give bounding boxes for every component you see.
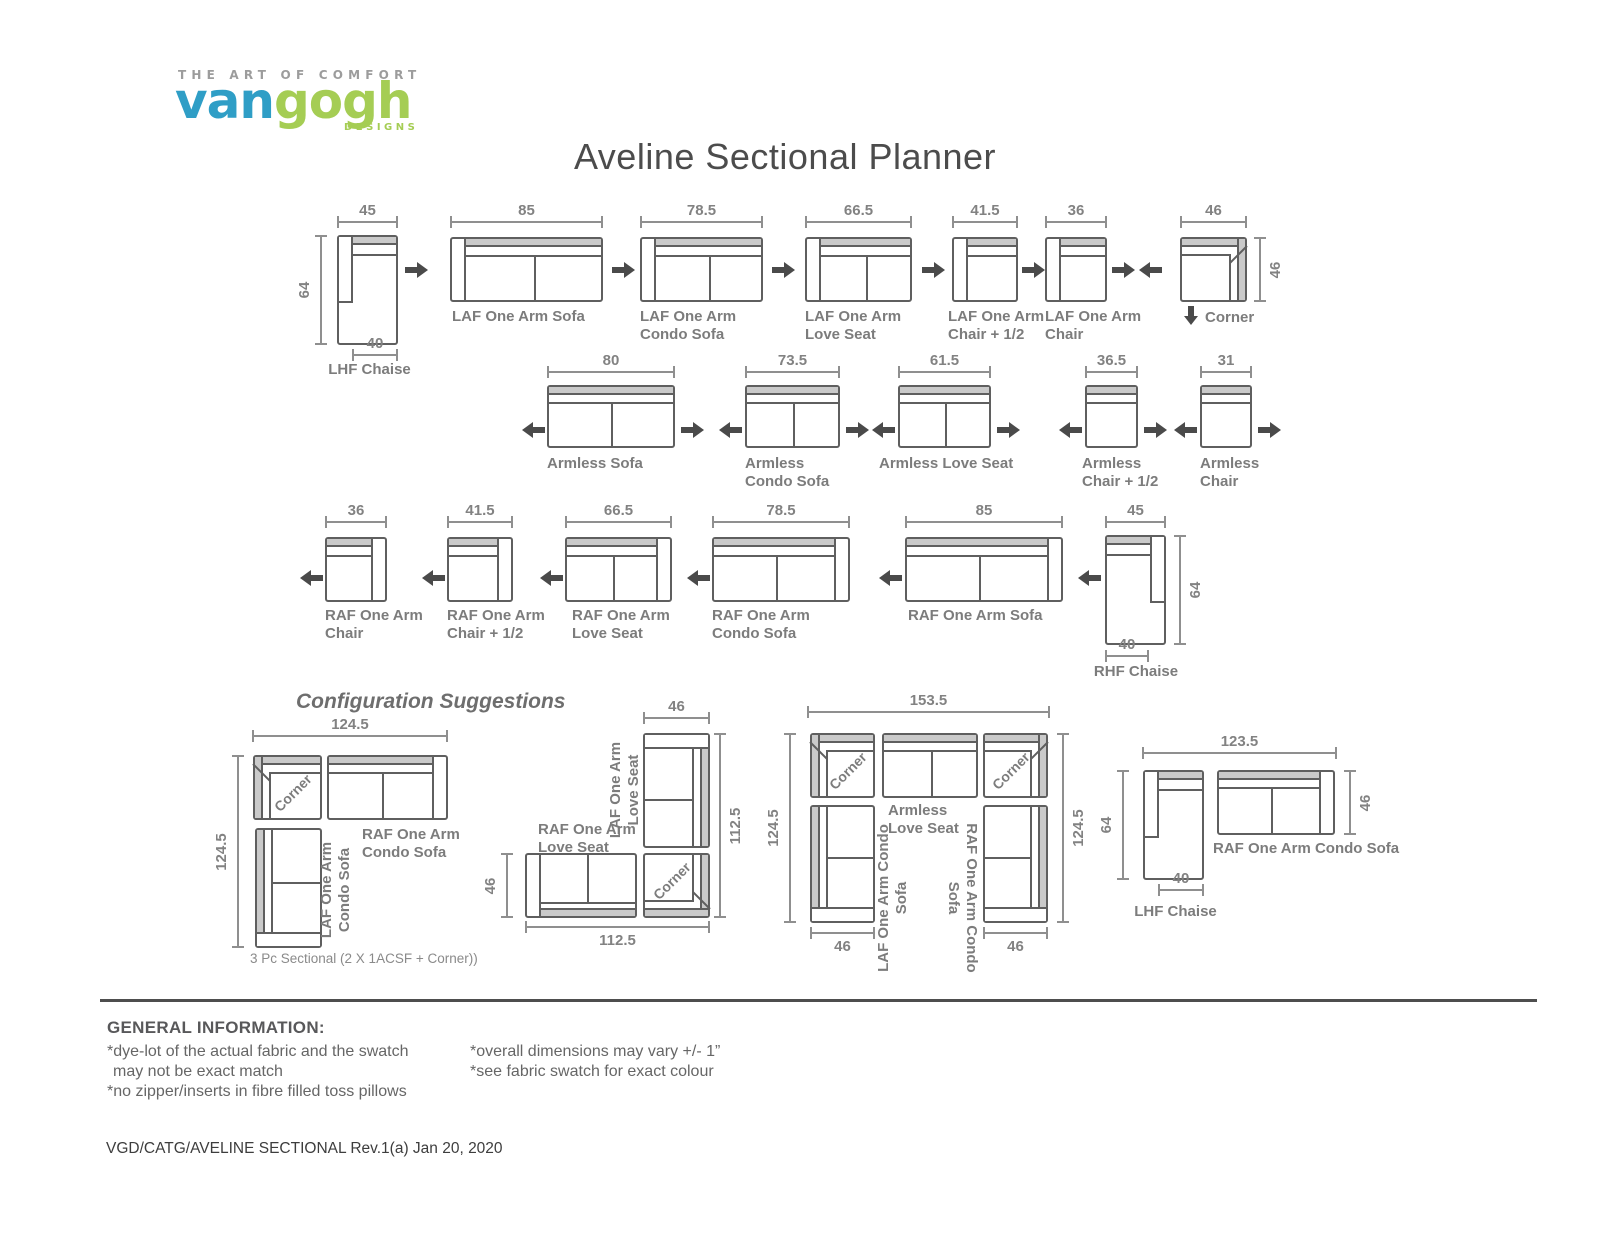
arm	[985, 907, 1046, 921]
config3-base-right-dim: 46	[983, 927, 1048, 939]
dim-value: 61.5	[880, 352, 1009, 369]
cushion-divider	[931, 750, 933, 796]
seat-line	[1182, 254, 1231, 256]
seat-line	[1159, 789, 1202, 791]
config3-corner-right-diagram: Corner	[983, 733, 1048, 798]
dim-value: 64	[1099, 802, 1115, 848]
armless-chairhalf-diagram	[1085, 385, 1138, 448]
backrest	[327, 539, 373, 547]
arrow-right-icon	[1258, 422, 1281, 438]
seat-line	[329, 772, 432, 774]
config2-laf-loveseat-diagram	[643, 733, 710, 848]
dim-line	[1087, 371, 1136, 373]
seat-line	[1030, 807, 1032, 909]
config1-width-dim: 124.5	[252, 730, 448, 742]
dim-line	[985, 932, 1046, 934]
armless-sofa-diagram	[547, 385, 675, 448]
arrow-shaft	[1150, 267, 1162, 273]
arrow-left-icon	[422, 570, 445, 586]
dim-line	[339, 221, 396, 223]
corner-label: Corner	[255, 755, 330, 830]
raf-chair-diagram	[325, 537, 387, 602]
corner-width-dim: 46	[1180, 216, 1247, 228]
arrow-head	[719, 422, 730, 438]
dim-line	[527, 926, 708, 928]
config4-sofa-depth-dim: 46	[1344, 770, 1356, 835]
dim-value: 46	[965, 938, 1066, 955]
arrow-shaft	[1188, 306, 1194, 316]
arrow-right-icon	[1144, 422, 1167, 438]
dim-value: 40	[334, 335, 416, 352]
seat-line	[1087, 402, 1136, 404]
dim-value: 36	[1027, 202, 1125, 219]
arrow-head	[858, 422, 869, 438]
arm	[339, 237, 353, 303]
cushion-divider	[945, 402, 947, 446]
arrow-shaft	[997, 427, 1009, 433]
config3-raf-condo-diagram	[983, 805, 1048, 923]
arrow-right-icon	[1022, 262, 1045, 278]
dim-line	[320, 237, 322, 343]
corner-label: Corner	[1184, 306, 1254, 327]
config1-raf-condo-diagram	[327, 755, 448, 820]
seat-line	[1061, 255, 1105, 257]
cushion-divider	[613, 555, 615, 600]
arrow-right-icon	[1112, 262, 1135, 278]
arrow-left-icon	[687, 570, 710, 586]
cushion-divider	[587, 855, 589, 902]
config4-width-dim: 123.5	[1142, 747, 1337, 759]
arrow-shaft	[846, 427, 858, 433]
dim-line	[1062, 735, 1064, 921]
backrest	[567, 539, 658, 547]
arrow-head	[1156, 422, 1167, 438]
dim-line	[747, 371, 838, 373]
cushion-divider	[709, 255, 711, 300]
dim-line	[645, 717, 708, 719]
armless-condo-diagram	[745, 385, 840, 448]
rhf-chaise-width-dim: 45	[1105, 516, 1166, 528]
config2-right-dim: 112.5	[714, 733, 726, 918]
arm	[1150, 537, 1164, 603]
arrow-shaft	[1144, 427, 1156, 433]
laf-chairhalf-label: LAF One Arm Chair + 1/2	[948, 308, 1052, 344]
arrow-shaft	[1112, 267, 1124, 273]
rhf-chaise-label: RHF Chaise	[1086, 663, 1186, 681]
rhf-chaise-depth-dim: 64	[1174, 535, 1186, 645]
corner-depth-dim: 46	[1254, 237, 1266, 302]
dim-value: 46	[1162, 202, 1265, 219]
backrest	[464, 239, 601, 247]
backrest	[257, 830, 265, 946]
config2-top-dim: 46	[643, 712, 710, 724]
dim-value: 153.5	[789, 692, 1068, 709]
laf-loveseat-label: LAF One Arm Love Seat	[805, 308, 915, 344]
backrest	[1157, 772, 1202, 780]
arrow-right-icon	[772, 262, 795, 278]
arrow-head	[1009, 422, 1020, 438]
backrest	[884, 735, 976, 743]
arrow-shaft	[890, 575, 902, 581]
arrow-shaft	[730, 427, 742, 433]
dim-line	[1179, 537, 1181, 643]
arrow-shaft	[698, 575, 710, 581]
seat-line	[1107, 554, 1150, 556]
info-line-match: may not be exact match	[113, 1062, 283, 1082]
laf-chair-width-dim: 36	[1045, 216, 1107, 228]
laf-sofa-diagram	[450, 237, 603, 302]
backrest	[449, 539, 499, 547]
dim-value: 64	[297, 267, 313, 313]
dim-value: 80	[529, 352, 693, 369]
arrow-right-icon	[681, 422, 704, 438]
arrow-left-icon	[1059, 422, 1082, 438]
armless-chairhalf-width-dim: 36.5	[1085, 366, 1138, 378]
lhf-chaise-width-dim: 45	[337, 216, 398, 228]
seat-line	[327, 555, 371, 557]
corner-diagram	[1180, 237, 1247, 302]
dim-value: 112.5	[728, 803, 744, 849]
seat-line	[968, 255, 1016, 257]
dim-value: 112.5	[507, 932, 728, 949]
dim-line	[452, 221, 601, 223]
armless-sofa-label: Armless Sofa	[547, 455, 643, 473]
lhf-chaise-diagram	[337, 235, 398, 345]
laf-chairhalf-diagram	[952, 237, 1018, 302]
dim-value: 85	[887, 502, 1081, 519]
config4-lhf-chaise-diagram	[1143, 770, 1204, 880]
dim-line	[1144, 752, 1335, 754]
arrow-right-icon	[922, 262, 945, 278]
config3-base-left-dim: 46	[810, 927, 875, 939]
arrow-shaft	[1070, 427, 1082, 433]
dim-line	[506, 855, 508, 916]
dim-value: 124.5	[1071, 805, 1087, 851]
dim-line	[254, 735, 446, 737]
document-footer: VGD/CATG/AVELINE SECTIONAL Rev.1(a) Jan …	[106, 1140, 503, 1158]
config4-raf-condo-diagram	[1217, 770, 1335, 835]
backrest	[1059, 239, 1105, 247]
armless-chair-diagram	[1200, 385, 1252, 448]
arrow-shaft	[1185, 427, 1197, 433]
arm	[1047, 239, 1061, 300]
config3-laf-condo-diagram	[810, 805, 875, 923]
dim-line	[1122, 772, 1124, 878]
backrest	[1202, 387, 1250, 395]
seat-line	[567, 555, 656, 557]
dim-line	[1182, 221, 1245, 223]
cushion-divider	[645, 799, 694, 801]
arrow-head	[300, 570, 311, 586]
arrow-shaft	[681, 427, 693, 433]
dim-value: 124.5	[234, 716, 466, 733]
dim-value: 46	[483, 863, 499, 909]
raf-loveseat-width-dim: 66.5	[565, 516, 672, 528]
backrest	[1107, 537, 1152, 545]
dim-value: 31	[1182, 352, 1270, 369]
arm	[812, 907, 873, 921]
raf-chairhalf-width-dim: 41.5	[447, 516, 513, 528]
dim-value: 46	[1358, 780, 1374, 826]
config3-width-dim: 153.5	[807, 706, 1050, 718]
backrest	[1087, 387, 1136, 395]
raf-condo-label: RAF One Arm Condo Sofa	[712, 607, 822, 643]
raf-loveseat-diagram	[565, 537, 672, 602]
backrest	[1182, 239, 1245, 247]
logo-van: van	[175, 72, 274, 130]
logo: vangogh	[175, 76, 411, 126]
rhf-chaise-seat-dim: 40	[1105, 650, 1149, 662]
dim-value: 66.5	[787, 202, 930, 219]
arrow-head	[1139, 262, 1150, 278]
arrow-left-icon	[719, 422, 742, 438]
backrest	[329, 757, 434, 765]
raf-chair-width-dim: 36	[325, 516, 387, 528]
arrow-shaft	[772, 267, 784, 273]
raf-loveseat-label: RAF One Arm Love Seat	[572, 607, 682, 643]
corner-label-text: Corner	[1205, 309, 1254, 326]
dim-line	[1160, 889, 1202, 891]
dim-value: 41.5	[934, 202, 1036, 219]
arrow-right-icon	[846, 422, 869, 438]
arm	[834, 539, 848, 600]
dim-line	[789, 735, 791, 921]
seat-line	[692, 749, 694, 846]
page-title: Aveline Sectional Planner	[500, 136, 1070, 178]
arrow-shaft	[405, 267, 417, 273]
laf-chair-label: LAF One Arm Chair	[1045, 308, 1149, 344]
cushion-divider	[793, 402, 795, 446]
cushion-divider	[979, 555, 981, 600]
backrest	[700, 747, 708, 846]
config2-bottom-dim: 112.5	[525, 921, 710, 933]
arm	[257, 932, 320, 946]
lhf-chaise-seat-dim: 40	[352, 349, 398, 361]
laf-condo-width-dim: 78.5	[640, 216, 763, 228]
backrest	[812, 807, 820, 921]
laf-condo-label: LAF One Arm Condo Sofa	[640, 308, 750, 344]
config1-height-dim: 124.5	[232, 755, 244, 948]
arm	[1145, 772, 1159, 838]
arrow-shaft	[612, 267, 624, 273]
seat-line	[449, 555, 497, 557]
info-line-zipper: *no zipper/inserts in fibre filled toss …	[107, 1082, 407, 1102]
arrow-right-icon	[405, 262, 428, 278]
armless-loveseat-diagram	[898, 385, 991, 448]
cushion-divider	[534, 255, 536, 300]
raf-sofa-label: RAF One Arm Sofa	[908, 607, 1042, 625]
arrow-shaft	[1258, 427, 1270, 433]
arrow-head	[1124, 262, 1135, 278]
armless-loveseat-width-dim: 61.5	[898, 366, 991, 378]
config3-armless-loveseat-diagram	[882, 733, 978, 798]
corner-label: Corner	[811, 734, 883, 806]
armless-chairhalf-label: Armless Chair + 1/2	[1082, 455, 1172, 491]
seat-line	[1202, 402, 1250, 404]
dim-line	[809, 711, 1048, 713]
arrow-head	[417, 262, 428, 278]
dim-value: 66.5	[547, 502, 690, 519]
dim-value: 124.5	[766, 805, 782, 851]
cushion-divider	[776, 555, 778, 600]
armless-chair-label: Armless Chair	[1200, 455, 1275, 491]
laf-loveseat-width-dim: 66.5	[805, 216, 912, 228]
backrest	[907, 539, 1049, 547]
arrow-head	[522, 422, 533, 438]
cushion-divider	[866, 255, 868, 300]
raf-sofa-width-dim: 85	[905, 516, 1063, 528]
armless-loveseat-label: Armless Love Seat	[879, 455, 1013, 473]
dim-value: 46	[1268, 247, 1284, 293]
arm	[527, 855, 541, 916]
config4-depth-dim: 64	[1117, 770, 1129, 880]
arrow-left-icon	[540, 570, 563, 586]
lhf-chaise-label: LHF Chaise	[322, 361, 417, 379]
arm	[452, 239, 466, 300]
arrow-left-icon	[1139, 262, 1162, 278]
dim-line	[1107, 521, 1164, 523]
arm	[642, 239, 656, 300]
backrest	[819, 239, 910, 247]
backrest	[549, 387, 673, 395]
arrow-left-icon	[872, 422, 895, 438]
rhf-chaise-diagram	[1105, 535, 1166, 645]
general-info-heading: GENERAL INFORMATION:	[107, 1018, 325, 1038]
dim-line	[719, 735, 721, 916]
armless-chair-width-dim: 31	[1200, 366, 1252, 378]
arrow-left-icon	[522, 422, 545, 438]
arrow-left-icon	[1078, 570, 1101, 586]
dim-line	[1107, 655, 1147, 657]
cushion-divider	[1271, 787, 1273, 833]
arrow-shaft	[311, 575, 323, 581]
backrest	[654, 239, 761, 247]
cushion-divider	[985, 857, 1030, 859]
config4-seat-dim: 40	[1158, 884, 1204, 896]
laf-chair-diagram	[1045, 237, 1107, 302]
cushion-divider	[382, 772, 384, 818]
arrow-head	[879, 570, 890, 586]
dim-value: 124.5	[214, 829, 230, 875]
raf-condo-diagram	[712, 537, 850, 602]
config4-chaise-label: LHF Chaise	[1128, 903, 1223, 921]
arrow-down-icon	[1184, 306, 1199, 325]
arrow-shaft	[883, 427, 895, 433]
config1-corner-diagram: Corner	[253, 755, 322, 820]
seat-line	[714, 555, 834, 557]
dim-value: 36.5	[1067, 352, 1156, 369]
dim-value: 78.5	[694, 502, 868, 519]
armless-condo-label: Armless Condo Sofa	[745, 455, 840, 491]
dim-value: 40	[1087, 636, 1167, 653]
dim-line	[954, 221, 1016, 223]
arm	[432, 757, 446, 818]
cushion-divider	[828, 857, 873, 859]
dim-line	[354, 354, 396, 356]
arrow-head	[934, 262, 945, 278]
backrest	[966, 239, 1016, 247]
arrow-right-icon	[997, 422, 1020, 438]
arrow-shaft	[533, 427, 545, 433]
config1-raf-condo-label: RAF One Arm Condo Sofa	[362, 826, 474, 862]
arm	[656, 539, 670, 600]
dim-line	[549, 371, 673, 373]
dim-value: 46	[792, 938, 893, 955]
dim-line	[812, 932, 873, 934]
laf-loveseat-diagram	[805, 237, 912, 302]
arrow-left-icon	[1174, 422, 1197, 438]
laf-condo-diagram	[640, 237, 763, 302]
cushion-divider	[611, 402, 613, 446]
backrest	[747, 387, 838, 395]
section-divider	[100, 999, 1537, 1002]
arrow-head	[687, 570, 698, 586]
dim-value: 73.5	[727, 352, 858, 369]
seat-line	[884, 750, 976, 752]
dim-value: 78.5	[622, 202, 781, 219]
arrow-left-icon	[879, 570, 902, 586]
arrow-head	[1034, 262, 1045, 278]
dim-value: 45	[1087, 502, 1184, 519]
arrow-right-icon	[612, 262, 635, 278]
arrow-head	[1270, 422, 1281, 438]
backrest	[1219, 772, 1321, 780]
dim-value: 45	[319, 202, 416, 219]
arrow-shaft	[433, 575, 445, 581]
config3-corner-left-diagram: Corner	[810, 733, 875, 798]
config3-right-dim: 124.5	[1057, 733, 1069, 923]
backrest	[539, 908, 635, 916]
backrest	[714, 539, 836, 547]
armless-condo-width-dim: 73.5	[745, 366, 840, 378]
info-line-swatch: *see fabric swatch for exact colour	[470, 1062, 714, 1082]
dim-value: 41.5	[429, 502, 531, 519]
laf-sofa-width-dim: 85	[450, 216, 603, 228]
dim-line	[327, 521, 385, 523]
dim-line	[567, 521, 670, 523]
seat-line	[353, 254, 396, 256]
config3-left-dim: 124.5	[784, 733, 796, 923]
dim-value: 64	[1188, 567, 1204, 613]
info-line-dyelot: *dye-lot of the actual fabric and the sw…	[107, 1042, 409, 1062]
arrow-left-icon	[300, 570, 323, 586]
raf-sofa-diagram	[905, 537, 1063, 602]
armless-sofa-width-dim: 80	[547, 366, 675, 378]
arrow-head	[693, 422, 704, 438]
arrow-head	[1184, 316, 1198, 325]
dim-line	[900, 371, 989, 373]
dim-line	[1202, 371, 1250, 373]
logo-designs: DESIGNS	[344, 122, 418, 133]
config1-laf-condo-label: LAF One Arm Condo Sofa	[318, 835, 354, 945]
arrow-shaft	[1089, 575, 1101, 581]
backrest	[1038, 807, 1046, 921]
arrow-head	[1078, 570, 1089, 586]
dim-line	[714, 521, 848, 523]
raf-chairhalf-label: RAF One Arm Chair + 1/2	[447, 607, 551, 643]
arm	[807, 239, 821, 300]
config2-left-dim: 46	[501, 853, 513, 918]
arrow-head	[872, 422, 883, 438]
arrow-head	[784, 262, 795, 278]
arm	[371, 539, 385, 600]
dim-value: 85	[432, 202, 621, 219]
config-suggestions-heading: Configuration Suggestions	[296, 690, 565, 714]
config1-laf-condo-diagram	[255, 828, 322, 948]
arm	[954, 239, 968, 300]
corner-label: Corner	[974, 734, 1046, 806]
dim-value: 46	[625, 698, 728, 715]
